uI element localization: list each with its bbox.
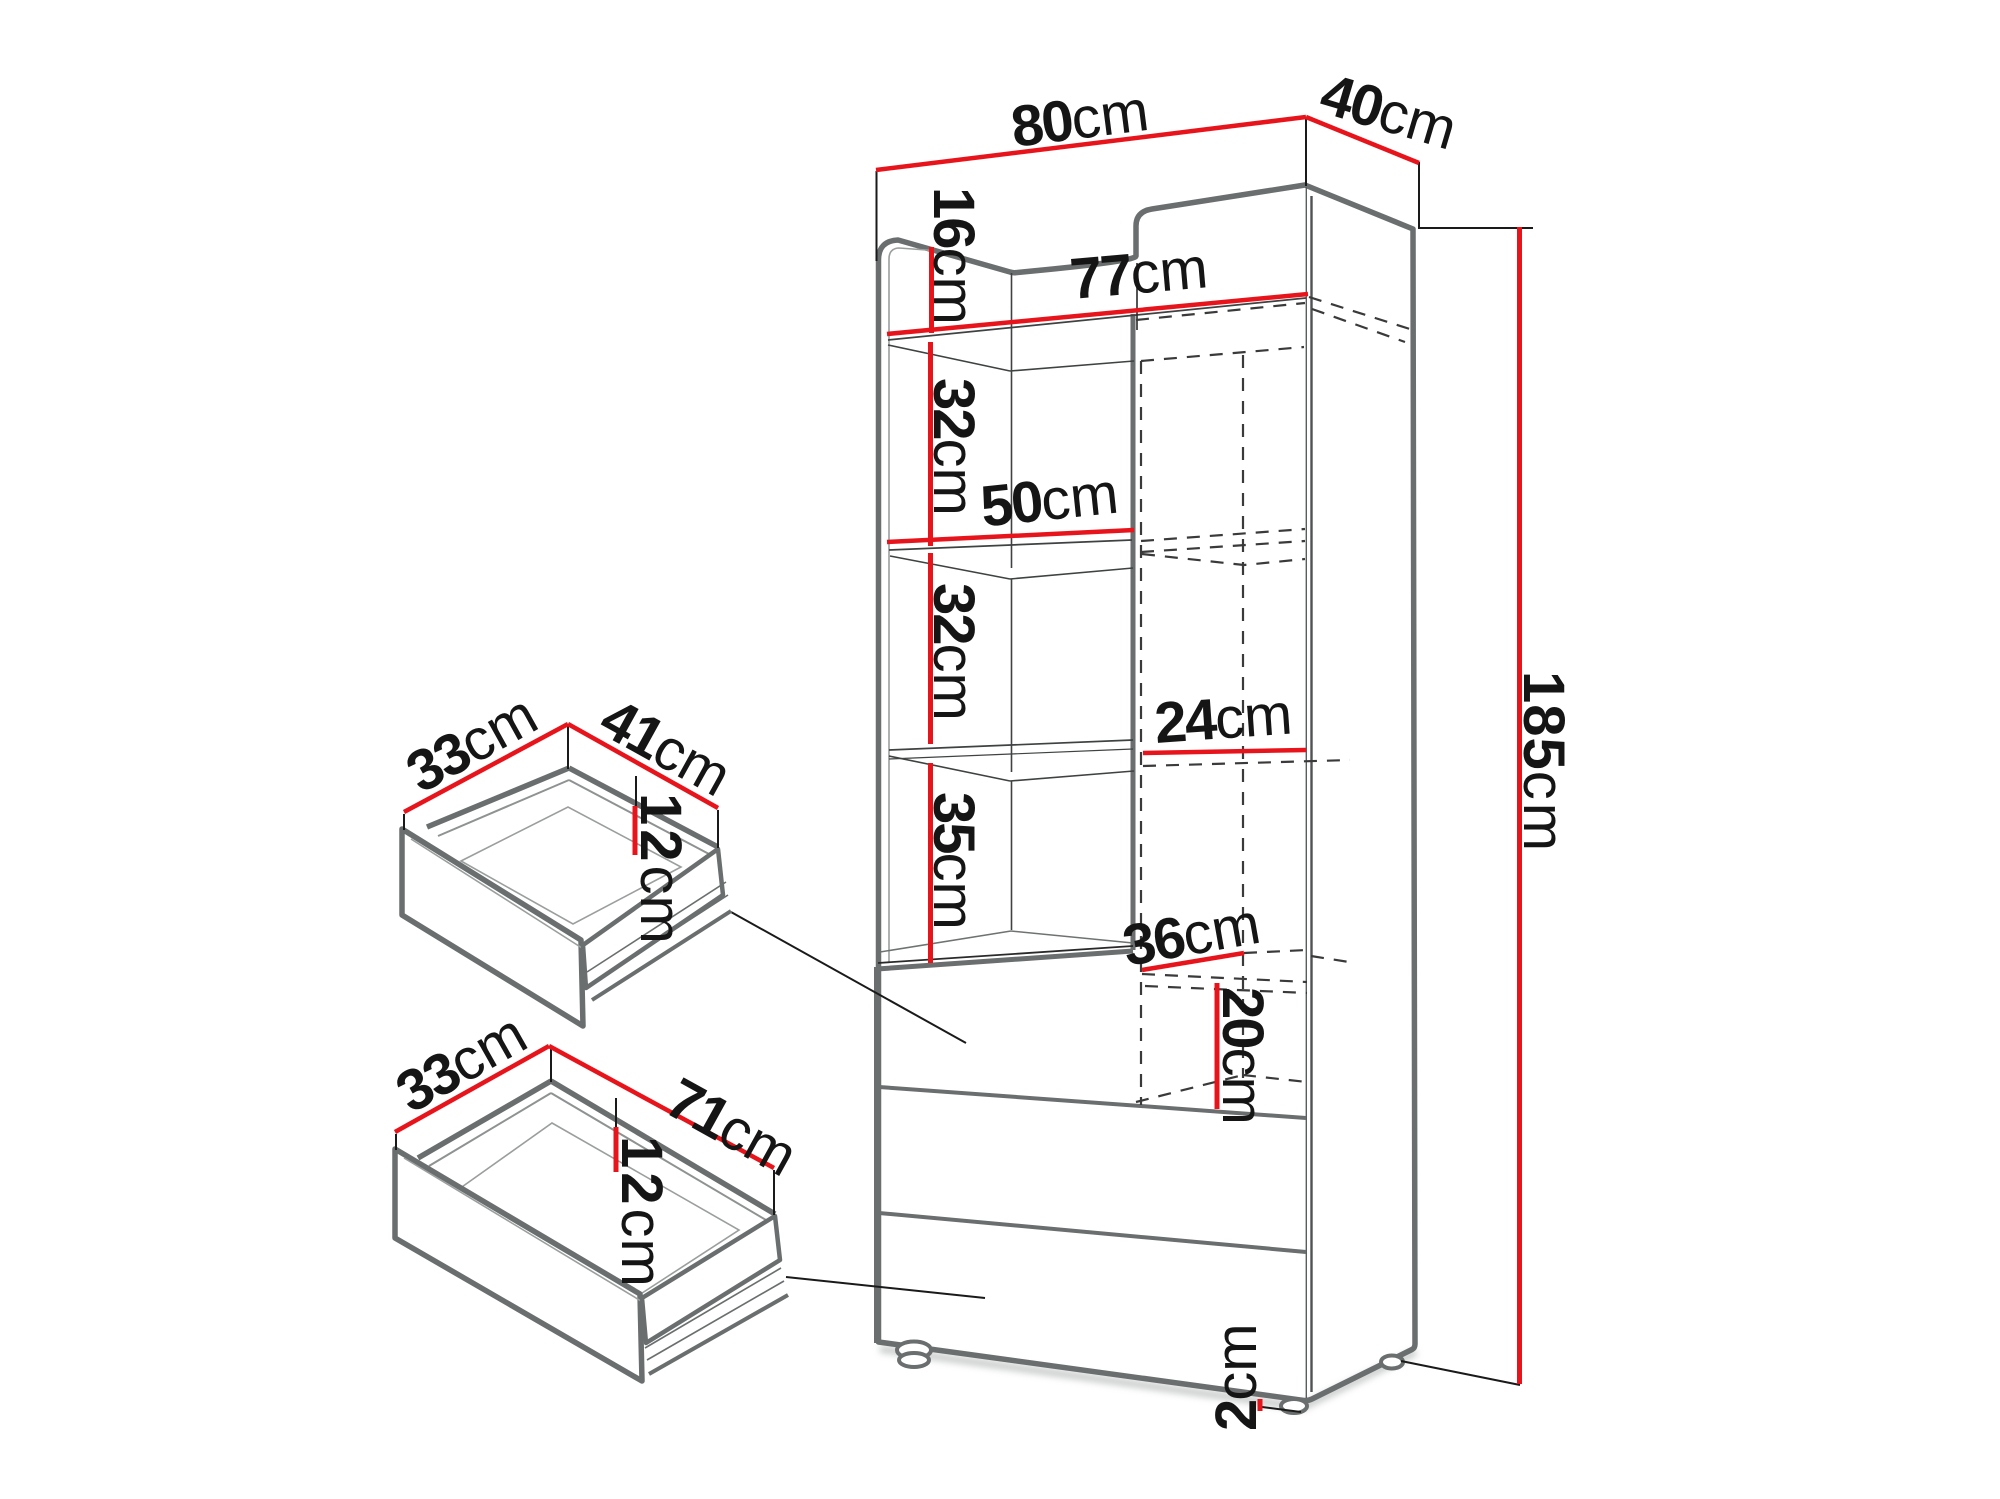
svg-text:24cm: 24cm [1152,682,1294,756]
svg-text:32cm: 32cm [921,378,986,516]
svg-text:16cm: 16cm [921,187,986,325]
svg-text:35cm: 35cm [921,792,986,930]
svg-text:12cm: 12cm [609,1136,674,1288]
svg-text:12cm: 12cm [628,793,693,945]
svg-text:2cm: 2cm [1204,1323,1269,1431]
svg-text:32cm: 32cm [921,583,986,721]
svg-text:20cm: 20cm [1210,987,1275,1125]
svg-text:185cm: 185cm [1511,671,1576,854]
svg-text:77cm: 77cm [1067,235,1210,312]
